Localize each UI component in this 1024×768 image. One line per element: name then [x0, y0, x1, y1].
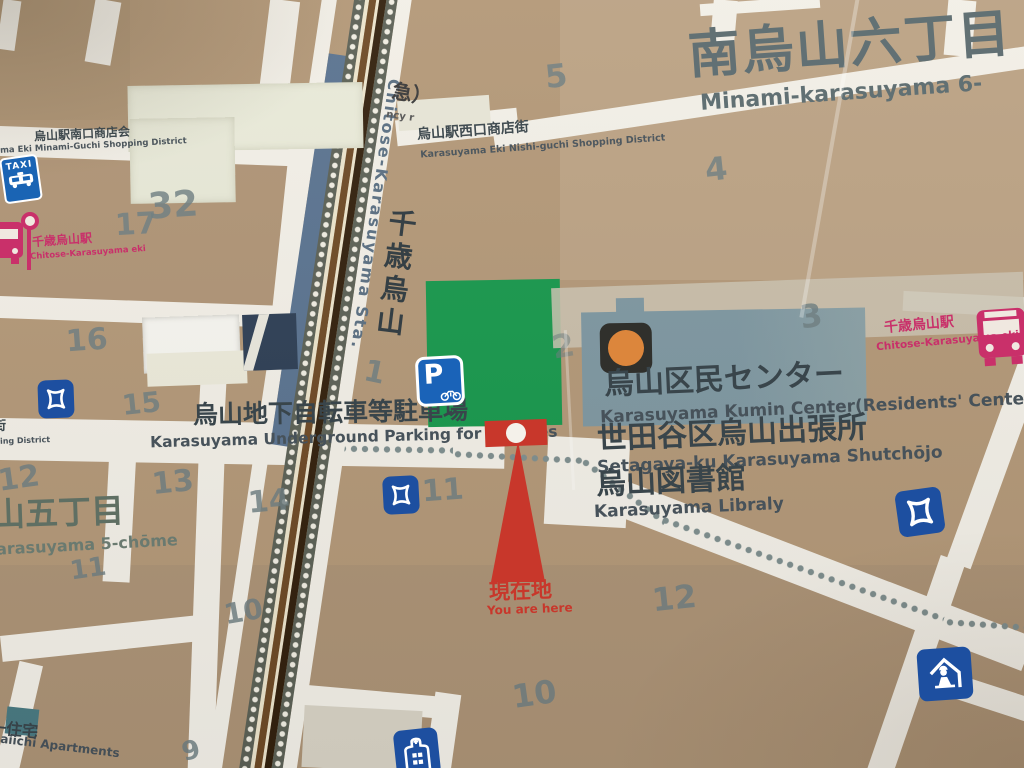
block-number: 1 — [361, 356, 388, 390]
guide-map-photo: 32 17 16 15 14 12 13 11 10 9 5 4 3 2 1 1… — [0, 0, 1024, 768]
station-marker-dot — [506, 423, 527, 444]
taxi-sign: TAXI — [0, 154, 43, 205]
road — [85, 0, 122, 66]
you-are-here-en: You are here — [487, 602, 573, 618]
road — [0, 0, 21, 51]
bus-stop-sign — [21, 212, 39, 230]
bicycle-icon — [439, 387, 462, 402]
block-number: 3 — [798, 299, 825, 334]
dark-sticker — [242, 313, 298, 371]
road — [946, 337, 1024, 570]
block-number: 10 — [222, 595, 265, 629]
facility-symbol-icon — [894, 486, 946, 538]
police-box-icon — [916, 646, 973, 702]
police-officer-glyph — [923, 653, 968, 696]
facility-symbol-icon — [382, 475, 420, 515]
hourglass-glyph — [901, 492, 940, 532]
edge-fragment-en: ing District — [0, 436, 50, 446]
sticker-streak — [242, 313, 270, 371]
bus-icon — [0, 220, 26, 266]
block-number: 12 — [650, 580, 698, 616]
hourglass-glyph — [43, 385, 70, 414]
edge-fragment-jp: 街 — [0, 420, 6, 434]
block-number: 4 — [703, 152, 728, 186]
parking-p-label: P — [423, 359, 444, 391]
road — [0, 615, 200, 662]
block-number: 12 — [0, 461, 42, 497]
orange-dot-icon — [608, 330, 645, 367]
block-number: 11 — [68, 554, 107, 585]
block-number: 10 — [510, 675, 559, 713]
block-number: 5 — [543, 59, 568, 93]
station-marker-bar — [485, 419, 548, 447]
library-jp: 烏山図書館 — [595, 463, 746, 501]
bicycle-parking-icon: P — [415, 355, 466, 407]
block-number: 13 — [151, 466, 196, 500]
hourglass-glyph — [387, 480, 414, 509]
hospital-icon — [393, 727, 442, 768]
you-are-here-jp: 現在地 — [489, 579, 553, 603]
chome5-jp: 山五丁目 — [0, 494, 125, 533]
white-sticker — [146, 350, 247, 386]
block-number: 11 — [421, 475, 465, 508]
block-number: 16 — [65, 325, 109, 358]
hospital-building-glyph — [398, 732, 436, 768]
you-are-here-arrow — [491, 441, 545, 582]
block-number: 14 — [247, 485, 291, 519]
block-number: 17 — [114, 209, 157, 241]
taxi-car-icon — [6, 170, 36, 190]
facility-symbol-icon — [37, 379, 74, 418]
block-number: 15 — [121, 388, 163, 420]
